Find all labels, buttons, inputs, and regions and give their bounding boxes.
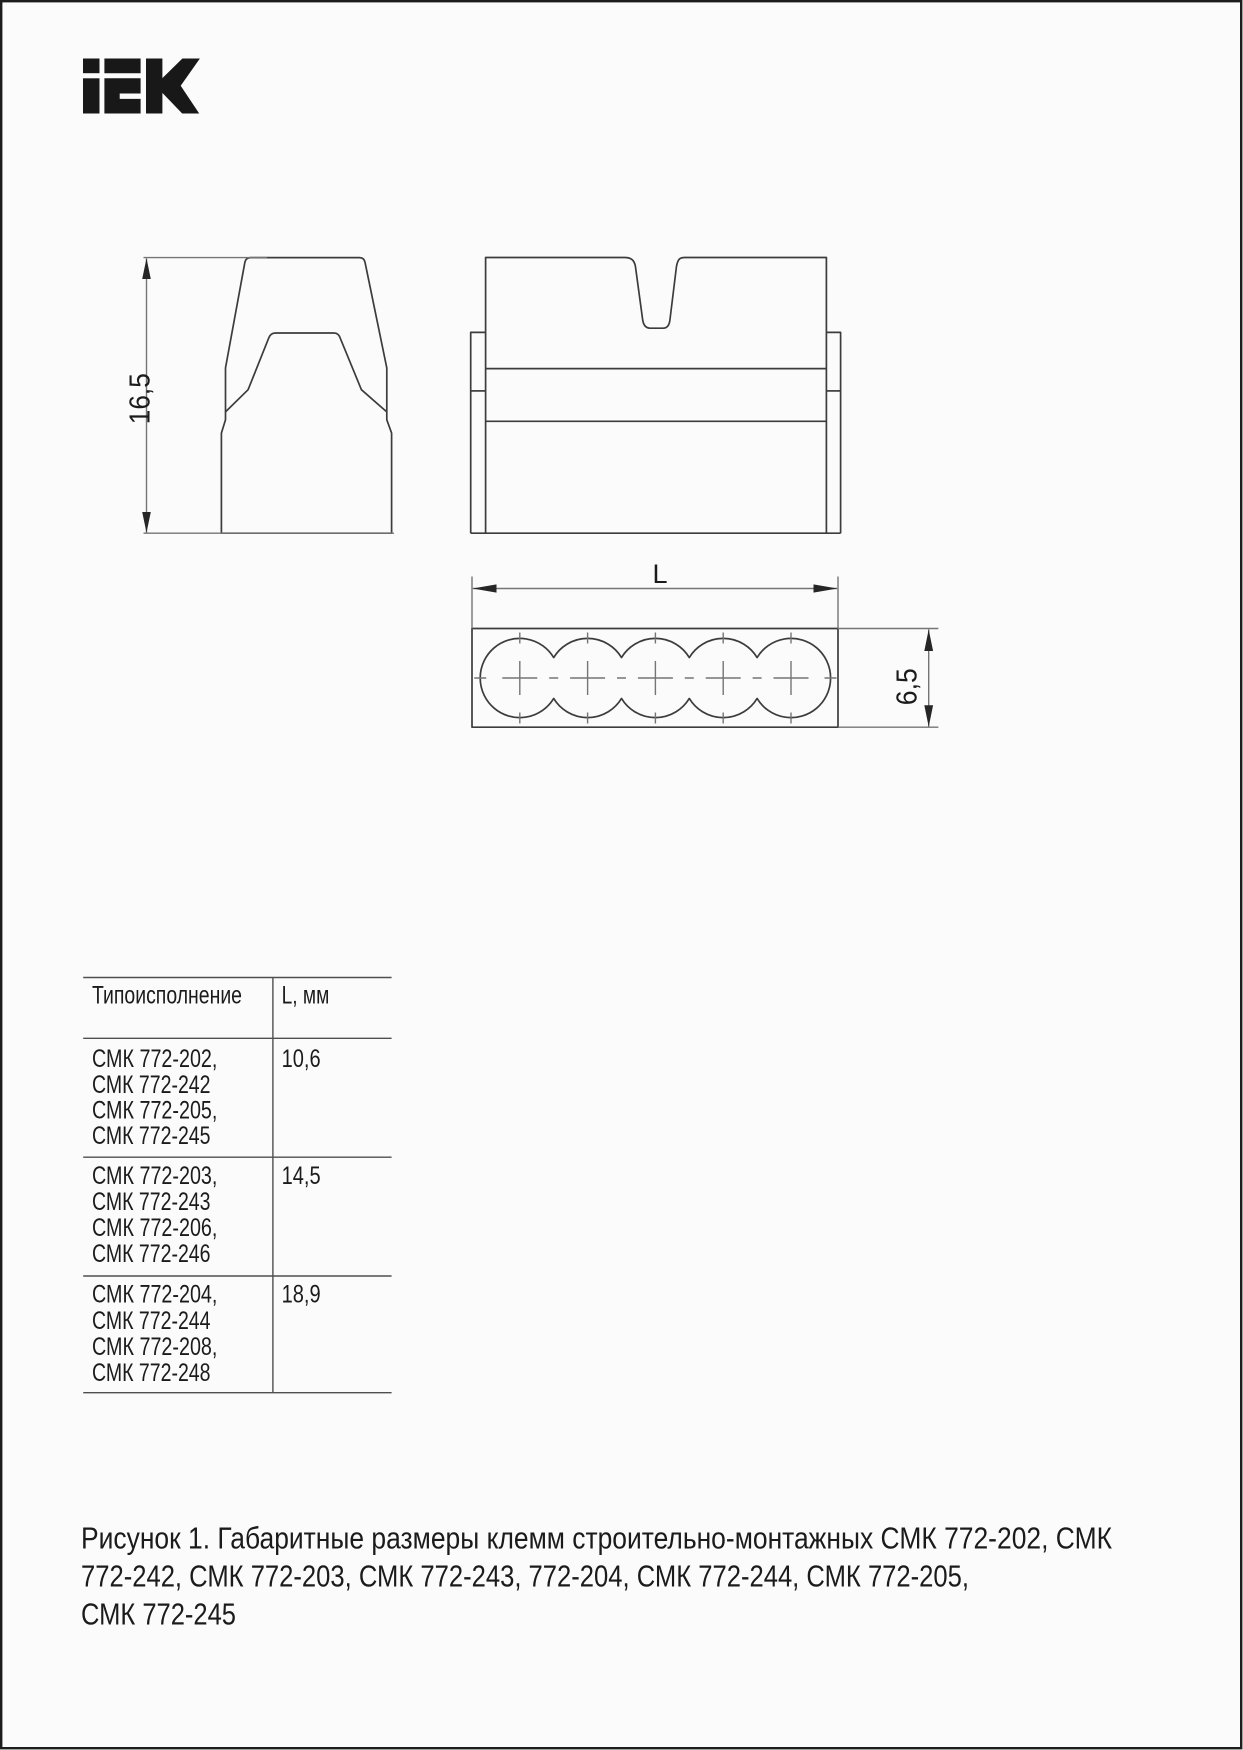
svg-text:СМК 772-208,: СМК 772-208,: [92, 1333, 217, 1361]
svg-text:L: L: [652, 559, 667, 589]
svg-text:СМК 772-243: СМК 772-243: [92, 1188, 211, 1216]
svg-text:16,5: 16,5: [125, 373, 157, 424]
svg-text:10,6: 10,6: [282, 1045, 321, 1073]
svg-text:Рисунок 1. Габаритные размеры: Рисунок 1. Габаритные размеры клемм стро…: [81, 1521, 1112, 1556]
svg-text:СМК 772-246: СМК 772-246: [92, 1240, 211, 1268]
svg-text:СМК 772-206,: СМК 772-206,: [92, 1214, 217, 1242]
svg-text:6,5: 6,5: [892, 668, 924, 705]
svg-text:СМК 772-245: СМК 772-245: [81, 1597, 236, 1632]
svg-text:СМК 772-244: СМК 772-244: [92, 1307, 211, 1335]
svg-text:СМК 772-203,: СМК 772-203,: [92, 1162, 217, 1190]
svg-text:772-242, СМК 772-203, СМК 772-: 772-242, СМК 772-203, СМК 772-243, 772-2…: [81, 1559, 969, 1594]
svg-text:Типоисполнение: Типоисполнение: [92, 981, 242, 1009]
svg-text:L, мм: L, мм: [282, 981, 330, 1009]
svg-text:СМК 772-202,: СМК 772-202,: [92, 1045, 217, 1073]
svg-text:СМК 772-204,: СМК 772-204,: [92, 1281, 217, 1309]
svg-text:18,9: 18,9: [282, 1281, 321, 1309]
svg-text:14,5: 14,5: [282, 1162, 321, 1190]
svg-text:СМК 772-205,: СМК 772-205,: [92, 1097, 217, 1125]
svg-text:СМК 772-242: СМК 772-242: [92, 1071, 211, 1099]
svg-text:СМК 772-248: СМК 772-248: [92, 1359, 211, 1387]
svg-text:СМК 772-245: СМК 772-245: [92, 1122, 211, 1150]
